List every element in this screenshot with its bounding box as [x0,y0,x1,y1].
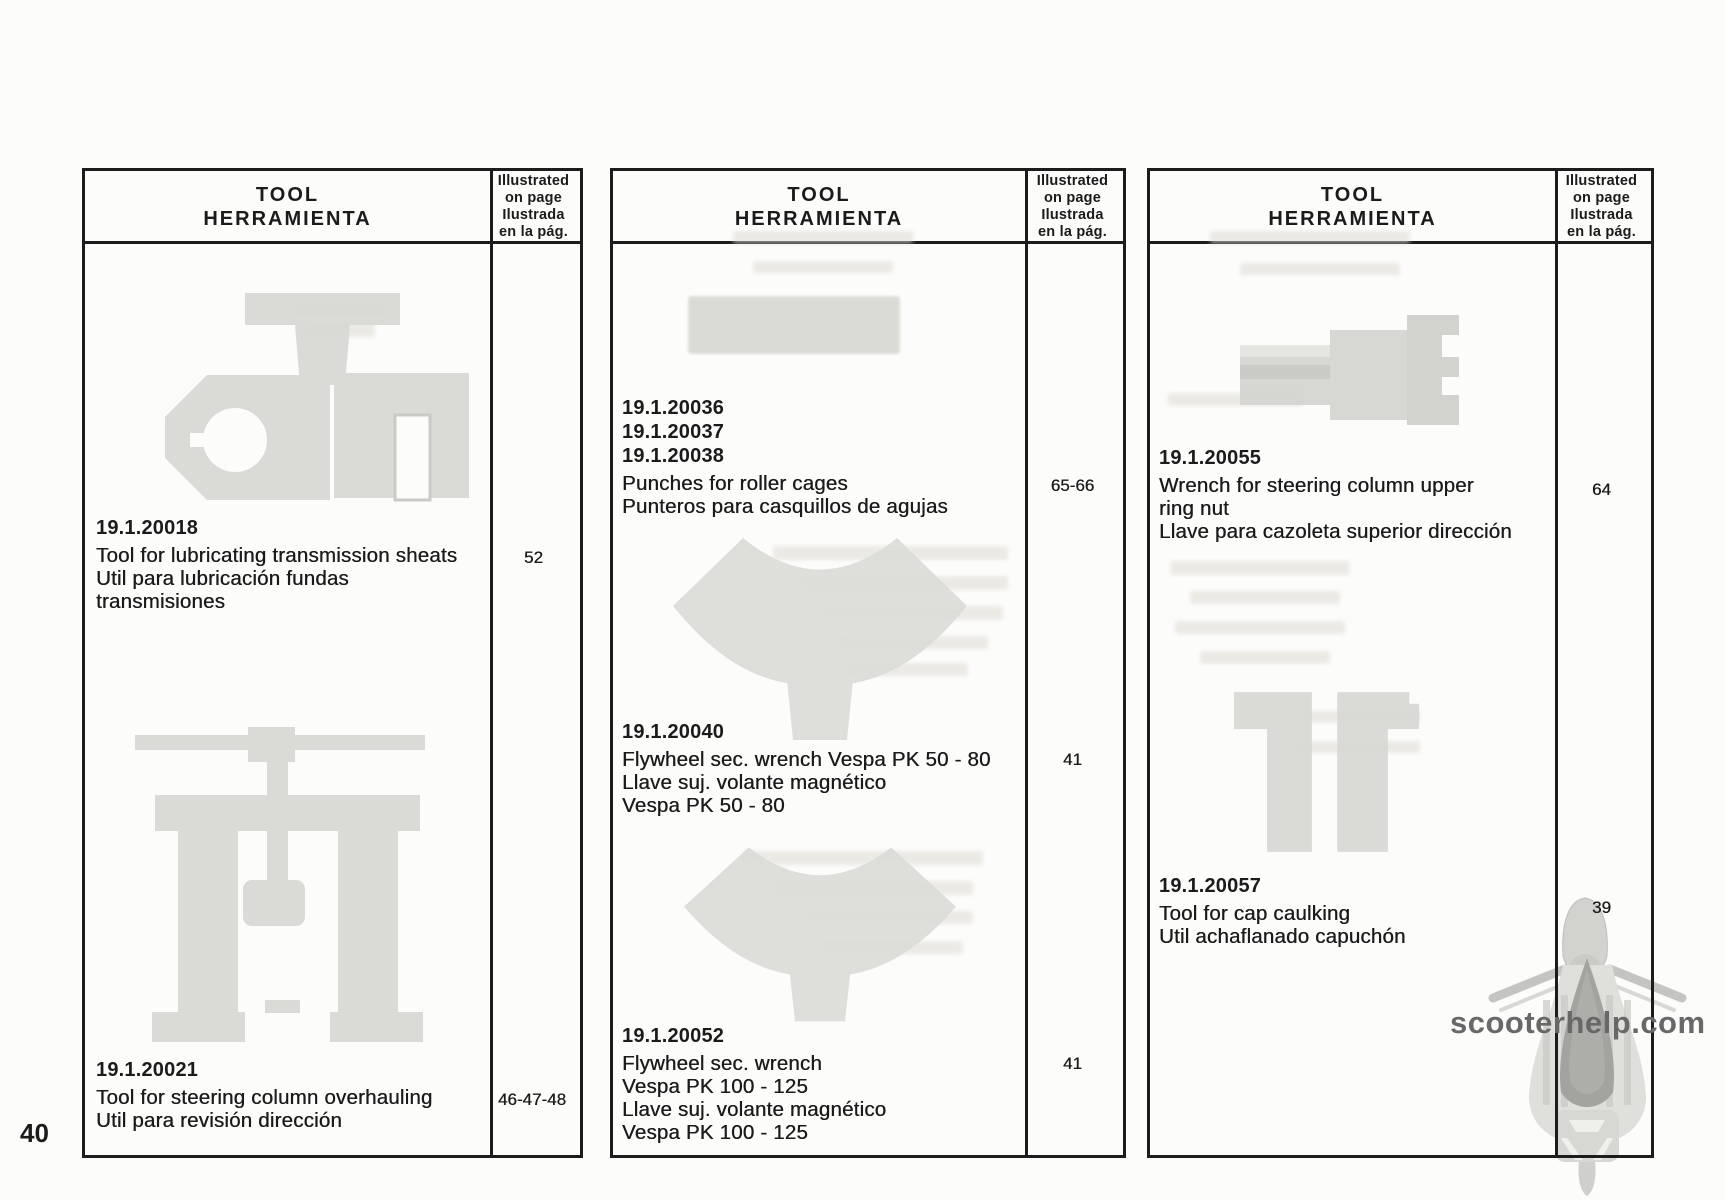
flywheel-wrench-illustration [665,528,975,743]
tool-entry-19-1-20018: 19.1.20018 Tool for lubricating transmis… [96,516,484,613]
header-tool-es: HERRAMIENTA [85,207,490,231]
tool-desc-en: Tool for lubricating transmission sheats [96,544,484,567]
bleedthrough-ghost [733,231,913,244]
header-tool-es: HERRAMIENTA [613,207,1025,231]
tool-code: 19.1.20036 [622,396,1010,420]
clamp-tool-illustration [162,288,472,503]
illustrated-header-cell: Illustrated on page Ilustrada en la pág. [1558,173,1645,241]
tool-entry-19-1-20021: 19.1.20021 Tool for steering column over… [96,1058,484,1132]
tool-desc-es: Util achaflanado capuchón [1159,925,1547,948]
tool-code: 19.1.20040 [622,720,1010,744]
flywheel-wrench-illustration [665,840,975,1025]
page-ref: 65-66 [1028,476,1117,496]
header-ill-4: en la pág. [1558,224,1645,241]
tool-code: 19.1.20055 [1159,446,1547,470]
page-ref: 39 [1558,898,1645,918]
tool-desc-en: Punches for roller cages [622,472,1010,495]
tool-desc-en: Tool for steering column overhauling [96,1086,484,1109]
tool-code: 19.1.20052 [622,1024,1010,1048]
tool-entry-19-1-20057: 19.1.20057 Tool for cap caulking Util ac… [1159,874,1547,948]
page-number: 40 [20,1118,49,1149]
bleedthrough-ghost [1175,621,1345,634]
ring-nut-socket-illustration [1232,313,1462,428]
illustrated-header-cell: Illustrated on page Ilustrada en la pág. [493,173,574,241]
bleedthrough-ghost [753,261,893,273]
page-ref: 41 [1028,1054,1117,1074]
tool-entry-19-1-20040: 19.1.20040 Flywheel sec. wrench Vespa PK… [622,720,1010,817]
header-ill-1: Illustrated [1028,173,1117,190]
tool-desc-en: Flywheel sec. wrench Vespa PK 50 - 80 [622,748,1010,771]
bleedthrough-ghost [688,296,900,354]
tool-code: 19.1.20021 [96,1058,484,1082]
header-ill-3: Ilustrada [1028,207,1117,224]
tool-entry-19-1-20036: 19.1.20036 19.1.20037 19.1.20038 Punches… [622,396,1010,518]
header-ill-2: on page [1558,190,1645,207]
tool-desc-es: Llave suj. volante magnético [622,771,1010,794]
caulking-blocks-illustration [1232,683,1422,861]
table-1-header: TOOL HERRAMIENTA Illustrated on page Ilu… [85,171,580,244]
tool-desc-es: Util para revisión dirección [96,1109,484,1132]
tool-table-2: TOOL HERRAMIENTA Illustrated on page Ilu… [610,168,1126,1158]
illustrated-header-cell: Illustrated on page Ilustrada en la pág. [1028,173,1117,241]
page-ref: 46-47-48 [490,1090,574,1110]
header-ill-4: en la pág. [493,224,574,241]
tool-desc-es: Punteros para casquillos de agujas [622,495,1010,518]
steering-column-puller-illustration [122,723,442,1043]
bleedthrough-ghost [1190,591,1340,604]
header-ill-3: Ilustrada [493,207,574,224]
tool-code: 19.1.20037 [622,420,1010,444]
tool-desc-en: Tool for cap caulking [1159,902,1547,925]
tool-desc-en: Wrench for steering column upper [1159,474,1547,497]
tool-desc-es: Llave para cazoleta superior dirección [1159,520,1547,543]
tool-header-cell: TOOL HERRAMIENTA [1150,183,1555,231]
bleedthrough-ghost [1240,263,1400,275]
header-tool-en: TOOL [85,183,490,207]
tool-table-1: TOOL HERRAMIENTA Illustrated on page Ilu… [82,168,583,1158]
header-ill-1: Illustrated [493,173,574,190]
header-ill-3: Ilustrada [1558,207,1645,224]
tool-desc-es: Util para lubricación fundas [96,567,484,590]
tool-desc-es: Vespa PK 100 - 125 [622,1121,1010,1144]
tool-header-cell: TOOL HERRAMIENTA [613,183,1025,231]
tool-header-cell: TOOL HERRAMIENTA [85,183,490,231]
header-ill-2: on page [493,190,574,207]
header-ill-1: Illustrated [1558,173,1645,190]
header-tool-en: TOOL [1150,183,1555,207]
page-ref: 41 [1028,750,1117,770]
header-ill-4: en la pág. [1028,224,1117,241]
column-divider [490,171,493,1155]
bleedthrough-ghost [1200,651,1330,664]
tool-desc-en: Flywheel sec. wrench [622,1052,1010,1075]
bleedthrough-ghost [1210,231,1410,244]
manual-page: TOOL HERRAMIENTA Illustrated on page Ilu… [0,0,1725,1200]
column-divider [1025,171,1028,1155]
tool-code: 19.1.20038 [622,444,1010,468]
header-tool-es: HERRAMIENTA [1150,207,1555,231]
page-ref: 64 [1558,480,1645,500]
tool-desc-en: ring nut [1159,497,1547,520]
tool-entry-19-1-20052: 19.1.20052 Flywheel sec. wrench Vespa PK… [622,1024,1010,1144]
tool-code: 19.1.20018 [96,516,484,540]
tool-entry-19-1-20055: 19.1.20055 Wrench for steering column up… [1159,446,1547,543]
tool-code: 19.1.20057 [1159,874,1547,898]
tool-desc-es: Vespa PK 50 - 80 [622,794,1010,817]
header-tool-en: TOOL [613,183,1025,207]
watermark-text: scooterhelp.com [1450,1005,1706,1041]
page-ref: 52 [493,548,574,568]
header-ill-2: on page [1028,190,1117,207]
bleedthrough-ghost [1170,561,1350,575]
tool-desc-en: Vespa PK 100 - 125 [622,1075,1010,1098]
tool-desc-es: transmisiones [96,590,484,613]
tool-desc-es: Llave suj. volante magnético [622,1098,1010,1121]
